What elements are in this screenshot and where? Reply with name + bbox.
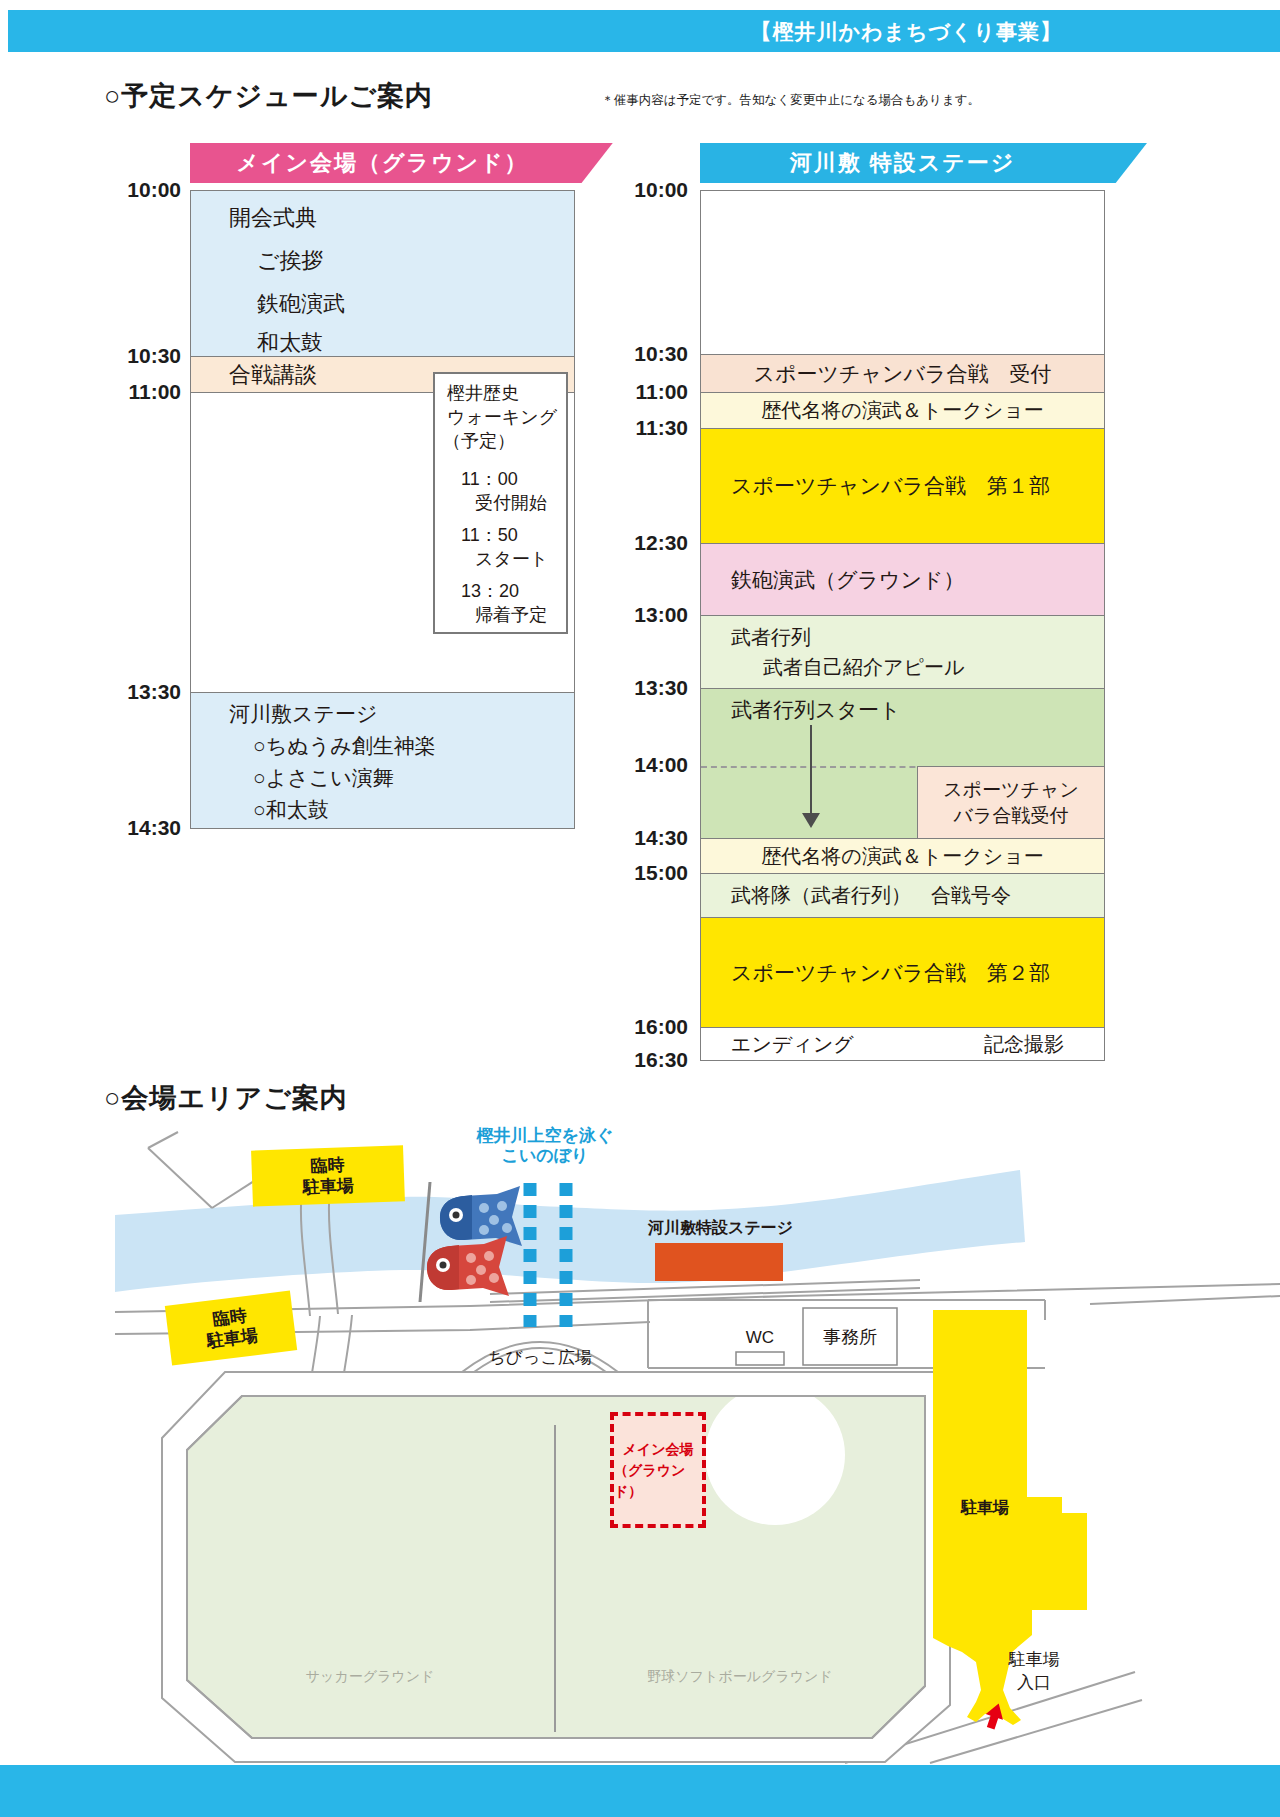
river-stage-banner: 河川敷 特設ステージ [700,143,1147,183]
event-line: 記念撮影 [984,1031,1064,1057]
schedule-section-title: ○予定スケジュールご案内 [104,78,433,114]
main-venue-banner: メイン会場（グラウンド） [190,143,617,183]
temp-parking-1: 臨時 駐車場 [251,1145,405,1206]
project-badge: 【樫井川かわまちづくり事業】 [751,18,1062,46]
time-label: 10:30 [603,342,688,366]
stage-musha-block: 武者行列 武者自己紹介アピール [700,615,1105,689]
walkbox-item: 帰着予定 [475,604,547,626]
time-label: 14:00 [603,753,688,777]
event-line: 河川敷ステージ [229,701,377,727]
event-line: 開会式典 [229,205,317,231]
footer-bar [0,1765,1280,1817]
walkbox-time: 11：00 [461,468,518,490]
down-arrow-icon [810,725,812,815]
event-line: バラ合戦受付 [918,803,1104,829]
time-label: 11:00 [96,380,181,404]
walkbox-title: （予定） [443,430,515,452]
walkbox-time: 13：20 [461,580,519,602]
main-stage-block: 河川敷ステージ ○ちぬうみ創生神楽 ○よさこい演舞 ○和太鼓 [190,692,575,829]
event-line: スポーツチャン [918,777,1104,803]
event-line: ○ちぬうみ創生神楽 [253,733,436,759]
time-label: 13:00 [603,603,688,627]
wc-label: WC [736,1328,784,1348]
soccer-ground-label: サッカーグラウンド [280,1668,460,1686]
time-label: 10:00 [96,178,181,202]
stage-chanbara1-block: スポーツチャンバラ合戦 第１部 [700,428,1105,544]
riverside-stage-rect [655,1243,783,1281]
down-arrow-icon [802,813,820,828]
koinobori-blue-icon [440,1186,522,1246]
time-label: 10:30 [96,344,181,368]
time-label: 10:00 [603,178,688,202]
event-line: スポーツチャンバラ合戦 第１部 [701,472,1050,500]
stage-reception2-box: スポーツチャン バラ合戦受付 [917,766,1105,839]
koinobori-label: 樫井川上空を泳ぐ こいのぼり [460,1126,630,1166]
main-venue-map-box: メイン会場 （グラウンド） [610,1412,706,1528]
stage-ending-block: エンディング 記念撮影 [700,1027,1105,1061]
time-label: 16:00 [603,1015,688,1039]
baseball-ground-label: 野球ソフトボールグラウンド [630,1668,850,1686]
main-venue-map-label: メイン会場 [623,1439,694,1460]
walking-plan-box: 樫井歴史 ウォーキング （予定） 11：00 受付開始 11：50 スタート 1… [433,372,568,634]
event-line: スポーツチャンバラ合戦 受付 [754,360,1052,388]
walkbox-item: スタート [475,548,548,570]
baseball-diamond-area [705,1385,845,1525]
stage-chanbara2-block: スポーツチャンバラ合戦 第２部 [700,917,1105,1028]
walkbox-title: ウォーキング [447,406,557,428]
stage-map-label: 河川敷特設ステージ [648,1218,793,1239]
event-line: 歴代名将の演武＆トークショー [761,397,1043,424]
stage-talkshow2-block: 歴代名将の演武＆トークショー [700,838,1105,874]
temp-parking-label: 臨時 [310,1154,345,1176]
parking-entrance-line: 駐車場 [994,1648,1074,1671]
stage-musha-start-block: 武者行列スタート スポーツチャン バラ合戦受付 [700,688,1105,839]
stage-reception1-block: スポーツチャンバラ合戦 受付 [700,354,1105,393]
event-line: エンディング [731,1031,854,1057]
event-line: ○よさこい演舞 [253,765,394,791]
event-line: 武将隊（武者行列） 合戦号令 [701,882,1011,909]
flyer-page: 【樫井川かわまちづくり事業】 ○予定スケジュールご案内 ＊催事内容は予定です。告… [0,0,1280,1817]
parking-entrance-line: 入口 [994,1671,1074,1694]
koinobori-label-line: 樫井川上空を泳ぐ [460,1126,630,1146]
stage-bushotai-block: 武将隊（武者行列） 合戦号令 [700,873,1105,918]
main-opening-block: 開会式典 ご挨拶 鉄砲演武 和太鼓 [190,190,575,357]
stage-empty-block [700,190,1105,355]
time-label: 15:00 [603,861,688,885]
event-line: 武者行列 [731,624,811,650]
event-line: 武者行列スタート [731,697,900,723]
event-line: ○和太鼓 [253,797,329,823]
time-label: 11:00 [603,380,688,404]
walkbox-item: 受付開始 [475,492,547,514]
event-line: スポーツチャンバラ合戦 第２部 [701,959,1050,987]
temp-parking-label: 駐車場 [303,1175,355,1198]
kids-plaza-label: ちびっこ広場 [465,1346,615,1369]
time-label: 13:30 [603,676,688,700]
stage-talkshow1-block: 歴代名将の演武＆トークショー [700,392,1105,429]
time-label: 12:30 [603,531,688,555]
event-line: 鉄砲演武 [257,291,345,317]
koinobori-label-line: こいのぼり [460,1146,630,1166]
time-label: 11:30 [603,416,688,440]
wc-building [736,1352,784,1365]
time-label: 14:30 [603,826,688,850]
walkbox-time: 11：50 [461,524,518,546]
event-line: ご挨拶 [257,248,324,274]
parking-entrance-label: 駐車場 入口 [994,1648,1074,1694]
event-line: 合戦講談 [229,362,317,388]
time-label: 16:30 [603,1048,688,1072]
schedule-note: ＊催事内容は予定です。告知なく変更中止になる場合もあります。 [580,92,980,109]
walkbox-title: 樫井歴史 [447,382,519,404]
time-label: 13:30 [96,680,181,704]
stage-teppo-block: 鉄砲演武（グラウンド） [700,543,1105,616]
map-section-title: ○会場エリアご案内 [104,1080,348,1116]
event-line: 武者自己紹介アピール [763,654,964,680]
header-bar: 【樫井川かわまちづくり事業】 [8,10,1280,52]
main-venue-map-label: （グラウンド） [614,1460,702,1502]
parking-label: 駐車場 [940,1498,1030,1519]
event-line: 和太鼓 [257,330,323,356]
event-line: 鉄砲演武（グラウンド） [701,566,964,594]
event-line: 歴代名将の演武＆トークショー [761,843,1043,870]
time-label: 14:30 [96,816,181,840]
office-label: 事務所 [803,1308,897,1365]
